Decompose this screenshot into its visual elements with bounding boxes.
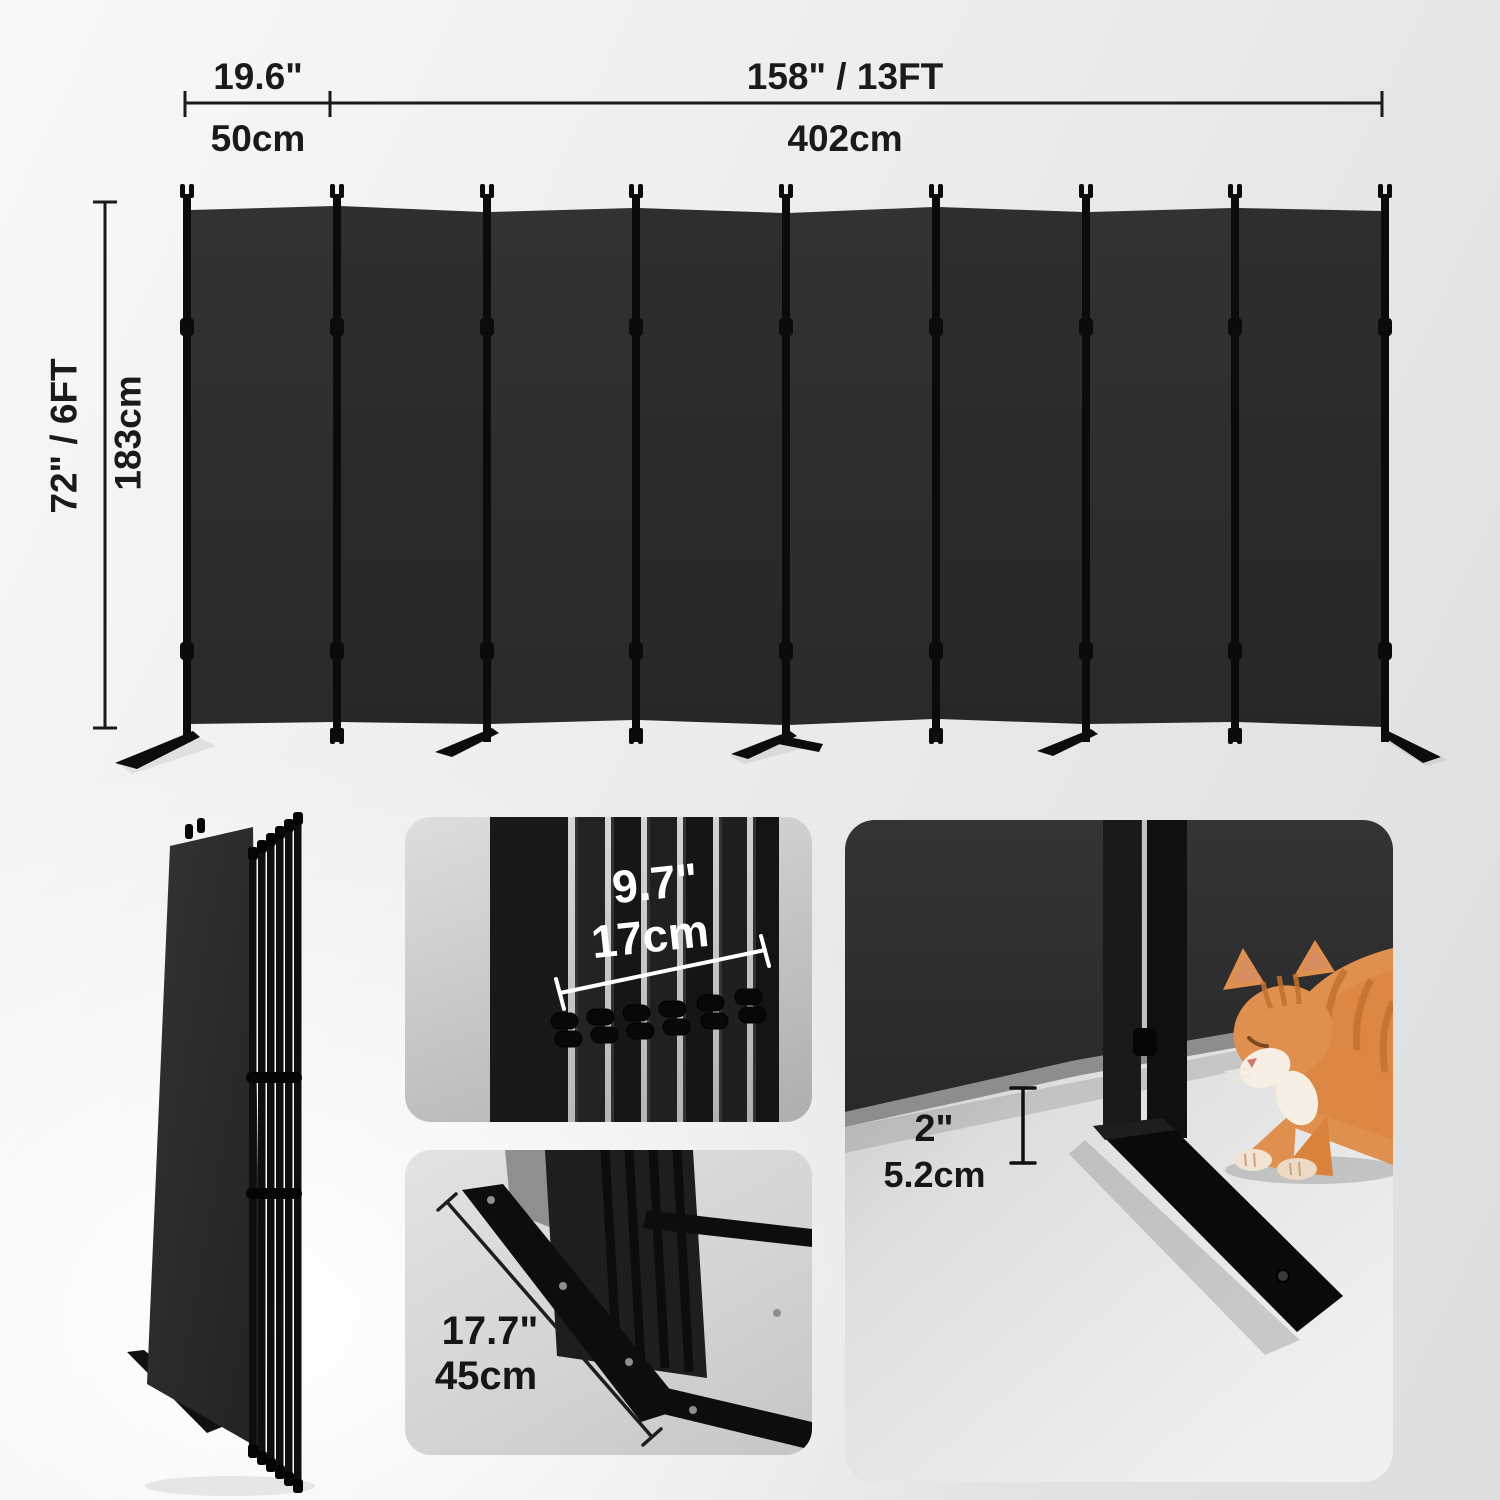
panel <box>639 208 783 725</box>
base-height-detail-card: 2" 5.2cm <box>845 820 1393 1482</box>
base-height-inches-label: 2" <box>900 1108 968 1152</box>
base-length-detail-card: 17.7" 45cm <box>405 1150 812 1455</box>
total-width-inches-label: 158" / 13FT <box>330 58 1360 95</box>
panel <box>1238 208 1383 727</box>
height-cm-label: 183cm <box>110 375 147 490</box>
folded-panel-face <box>147 827 262 1450</box>
total-width-cm-label: 402cm <box>330 120 1360 157</box>
panel <box>789 207 933 725</box>
product-dimension-diagram-page: { "product": { "name": "8-Panel Folding … <box>0 0 1500 1500</box>
base-length-cm-label: 45cm <box>411 1353 561 1399</box>
plate-screw-hole <box>1277 1270 1289 1282</box>
base-plate-closeup <box>405 1150 812 1455</box>
panel <box>340 206 484 724</box>
foot <box>435 728 499 757</box>
panel-width-cm-label: 50cm <box>186 120 330 157</box>
panel <box>939 207 1083 724</box>
height-inches-label: 72" / 6FT <box>46 358 83 513</box>
foot <box>1037 729 1098 756</box>
base-height-cm-label: 5.2cm <box>877 1154 992 1195</box>
panel-width-inches-label: 19.6" <box>186 58 330 95</box>
panel <box>1089 208 1232 724</box>
panel <box>490 208 633 724</box>
folded-depth-detail-card: 9.7" 17cm <box>405 817 812 1122</box>
foot <box>1381 731 1441 763</box>
base-length-inches-label: 17.7" <box>415 1308 565 1354</box>
folded-divider-illustration <box>85 800 330 1500</box>
panel <box>190 206 334 724</box>
